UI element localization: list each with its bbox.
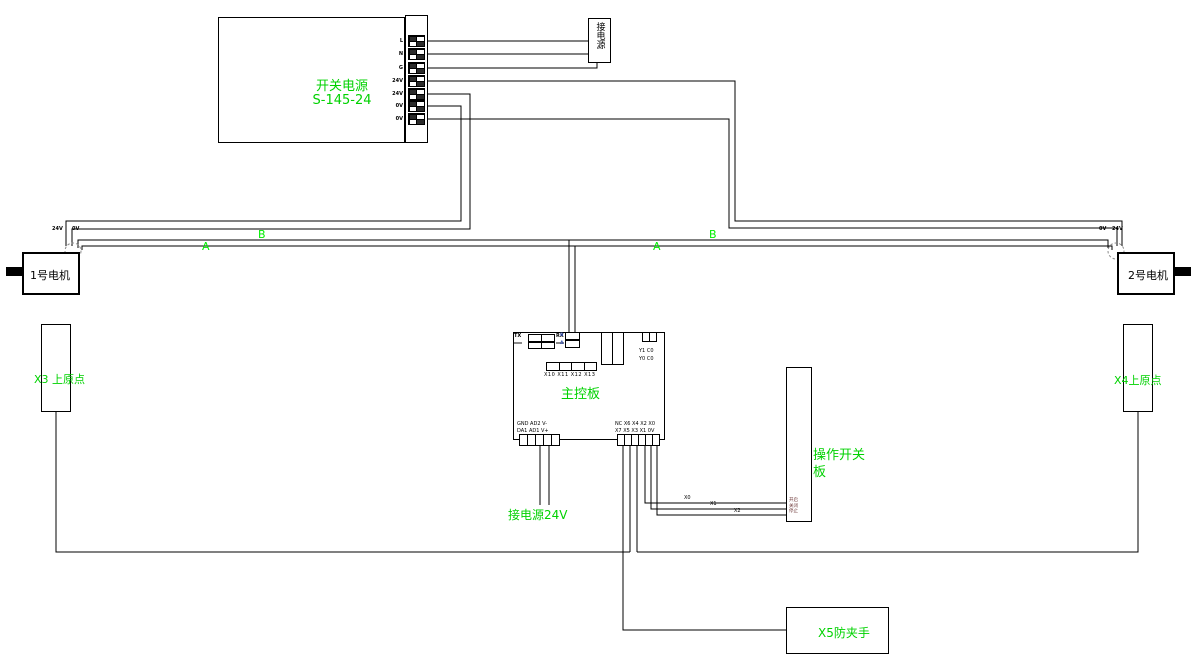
power-inlet-label: 接电源 xyxy=(595,22,605,49)
motor2-box: 2号电机 xyxy=(1117,252,1175,295)
psu-terminal-G xyxy=(408,62,425,74)
psu-terminal-0v-2 xyxy=(408,113,425,125)
psu-terminal-L xyxy=(408,35,425,47)
op-button-open: 开启 xyxy=(789,498,798,504)
wire-tag-x2: X2 xyxy=(734,508,741,514)
main-board-comm-serial-block xyxy=(528,334,554,349)
power-inlet-box: 接电源 xyxy=(588,18,611,63)
main-board-input-strip xyxy=(617,434,659,446)
main-board-tx-label: TX xyxy=(514,333,521,339)
main-board-output-terminal xyxy=(642,332,656,342)
output-label-y0: Y0 C0 xyxy=(639,356,654,362)
bus-terminal-label-a: A xyxy=(560,341,563,346)
sensor-x3-label: X3 上原点 xyxy=(34,371,85,387)
sensor-x4-label: X4上原点 xyxy=(1114,372,1162,388)
op-board-buttons: 开启 关闭 停止 xyxy=(789,498,798,515)
wire-tag-x0: X0 xyxy=(684,495,691,501)
power-24v-label: 接电源24V xyxy=(508,506,567,523)
main-board-relay-block xyxy=(601,332,624,365)
power-supply-name: 开关电源 xyxy=(308,80,376,94)
power-supply-title: 开关电源 S-145-24 xyxy=(308,80,376,108)
main-board-analog-strip xyxy=(519,434,559,446)
io-strip-labels: X10 X11 X12 X13 xyxy=(544,372,595,378)
sensor-x4-box xyxy=(1123,324,1153,412)
psu-terminal-label-0v-2: 0V xyxy=(378,116,403,122)
psu-terminal-label-l: L xyxy=(378,38,403,44)
op-board-label-line2: 板 xyxy=(813,461,826,480)
psu-terminal-label-0v-1: 0V xyxy=(378,103,403,109)
bus-label-b-right: B xyxy=(709,228,717,241)
bus-label-a-left: A xyxy=(202,240,210,253)
analog-label-row1: GND AD2 V- xyxy=(517,421,547,427)
motor2-wire-label-24v: 24V xyxy=(1112,226,1123,232)
psu-terminal-label-24v-2: 24V xyxy=(378,91,403,97)
main-board-title: 主控板 xyxy=(561,383,600,402)
motor1-wire-label-24v: 24V xyxy=(52,226,63,232)
psu-terminal-label-24v-1: 24V xyxy=(378,78,403,84)
bus-label-a-right: A xyxy=(653,240,661,253)
tx-sub-mark xyxy=(514,342,522,344)
output-label-y1: Y1 C0 xyxy=(639,348,654,354)
motor1-label: 1号电机 xyxy=(30,267,70,283)
psu-terminal-0v-1 xyxy=(408,100,425,112)
sensor-x3-box xyxy=(41,324,71,412)
op-button-stop: 停止 xyxy=(789,509,798,515)
motor1-box: 1号电机 xyxy=(22,252,80,295)
relay-divider xyxy=(612,333,613,364)
bus-label-b-left: B xyxy=(258,228,266,241)
motor2-shaft xyxy=(1175,267,1191,276)
main-board-io-strip xyxy=(546,362,596,371)
anti-pinch-box: X5防夹手 xyxy=(786,607,889,654)
psu-terminal-N xyxy=(408,48,425,60)
motor2-label: 2号电机 xyxy=(1128,267,1168,283)
main-board-bus-terminal xyxy=(565,332,579,348)
psu-terminal-24v-1 xyxy=(408,75,425,87)
bus-terminal-label-b: B xyxy=(560,333,563,338)
motor1-shaft xyxy=(6,267,22,276)
anti-pinch-label: X5防夹手 xyxy=(818,624,870,641)
wiring-diagram: 开关电源 S-145-24 L N G 24V 24V 0V 0V 接电源 1号… xyxy=(0,0,1198,665)
power-supply-model: S-145-24 xyxy=(308,94,376,108)
psu-terminal-label-g: G xyxy=(378,65,403,71)
op-board-box: 开启 关闭 停止 xyxy=(786,367,812,522)
input-label-row1: NC X6 X4 X2 X0 xyxy=(615,421,655,427)
psu-terminal-24v-2 xyxy=(408,88,425,100)
motor2-wire-label-0v: 0V xyxy=(1099,226,1106,232)
wire-tag-x1: X1 xyxy=(710,501,717,507)
motor1-wire-label-0v: 0V xyxy=(72,226,79,232)
psu-terminal-label-n: N xyxy=(378,51,403,57)
